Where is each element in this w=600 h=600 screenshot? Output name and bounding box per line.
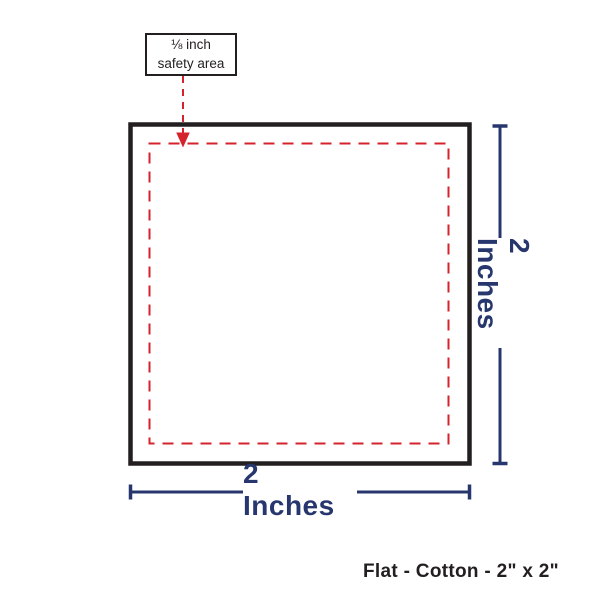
width-dimension-label: 2 Inches (243, 471, 357, 508)
callout-line1: ⅛ inch (171, 36, 211, 55)
callout-arrowhead-icon (176, 133, 190, 148)
diagram-caption: Flat - Cotton - 2" x 2" (330, 561, 592, 583)
height-dimension-label: 2 Inches (484, 238, 522, 348)
patch-outline-square (131, 125, 470, 464)
patch-size-diagram: ⅛ inch safety area 2 Inches 2 Inches Fla… (0, 0, 600, 600)
safety-area-dashed-rect (150, 144, 449, 444)
safety-area-callout: ⅛ inch safety area (145, 33, 237, 76)
callout-line2: safety area (158, 55, 225, 74)
